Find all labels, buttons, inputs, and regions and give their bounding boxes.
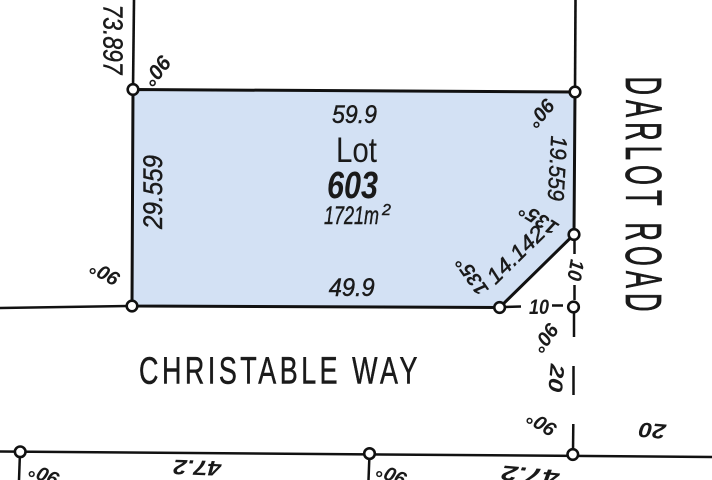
svg-text:19.559: 19.559: [543, 135, 572, 201]
svg-text:20: 20: [638, 417, 668, 442]
svg-text:1721m: 1721m: [324, 202, 379, 230]
svg-text:2: 2: [381, 202, 391, 219]
svg-text:59.9: 59.9: [332, 101, 377, 129]
svg-text:DARLOT ROAD: DARLOT ROAD: [615, 77, 672, 317]
svg-text:603: 603: [327, 165, 378, 207]
svg-text:20: 20: [543, 362, 567, 393]
svg-text:73.897: 73.897: [98, 5, 129, 76]
svg-text:29.559: 29.559: [138, 155, 168, 230]
svg-text:49.9: 49.9: [329, 274, 375, 302]
svg-text:10: 10: [562, 258, 587, 283]
svg-text:47.2: 47.2: [173, 455, 223, 480]
svg-text:CHRISTABLE WAY: CHRISTABLE WAY: [139, 351, 421, 393]
svg-text:10: 10: [529, 296, 549, 319]
